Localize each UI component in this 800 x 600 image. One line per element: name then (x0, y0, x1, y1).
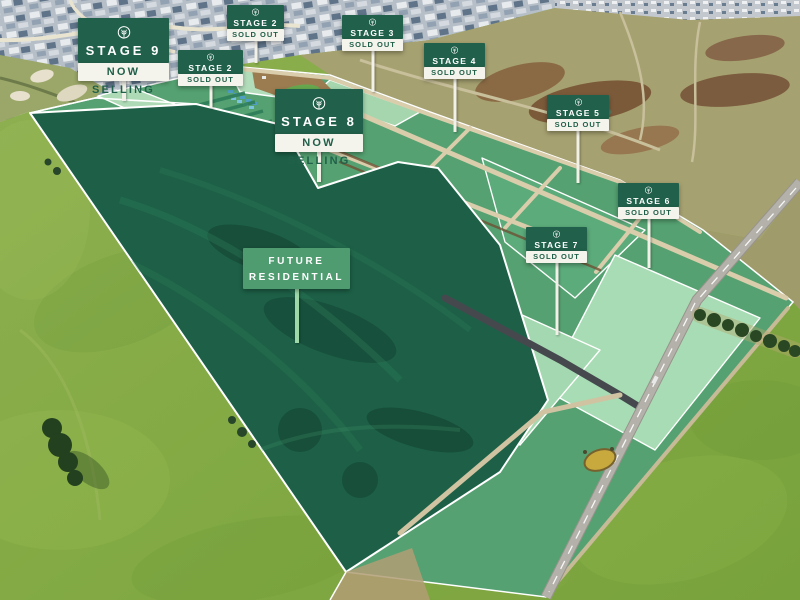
sign-stage-9: STAGE 9 NOW SELLING (78, 18, 169, 81)
sign-post (453, 77, 456, 132)
sign-board: STAGE 7 (526, 227, 587, 251)
sign-title: STAGE 4 (432, 56, 476, 66)
tree-icon (206, 53, 215, 62)
tree-icon (644, 186, 653, 195)
sign-status: SOLD OUT (424, 67, 485, 79)
sign-post (647, 217, 650, 268)
sign-title: STAGE 2 (233, 18, 277, 28)
sign-title: STAGE 7 (534, 240, 578, 250)
tree-icon (251, 8, 260, 17)
sign-status: NOW SELLING (275, 134, 363, 152)
sign-board: STAGE 4 (424, 43, 485, 67)
sign-stage-2-west: STAGE 2 SOLD OUT (178, 50, 243, 86)
sign-board: STAGE 5 (547, 95, 609, 119)
future-label-line1: FUTURE (268, 254, 324, 270)
sign-status: SOLD OUT (227, 29, 284, 41)
sign-title: STAGE 5 (556, 108, 600, 118)
sign-title: STAGE 2 (188, 63, 232, 73)
sign-board: STAGE 9 (78, 18, 169, 63)
sign-stage-2-north: STAGE 2 SOLD OUT (227, 5, 284, 41)
sign-post (555, 261, 558, 335)
tree-icon (368, 18, 377, 27)
sign-board: STAGE 8 (275, 89, 363, 134)
masterplan-aerial-image: STAGE 2 SOLD OUT STAGE 3 SOLD OUT STAGE … (0, 0, 800, 600)
sign-board: STAGE 6 (618, 183, 679, 207)
future-label-line2: RESIDENTIAL (249, 270, 344, 286)
sign-title: STAGE 9 (86, 43, 162, 58)
sign-stage-7: STAGE 7 SOLD OUT (526, 227, 587, 263)
sign-title: STAGE 3 (350, 28, 394, 38)
sign-stage-4: STAGE 4 SOLD OUT (424, 43, 485, 79)
tree-icon (574, 98, 583, 107)
sign-status: SOLD OUT (547, 119, 609, 131)
sign-status: SOLD OUT (342, 39, 403, 51)
tree-icon (552, 230, 561, 239)
sign-status: SOLD OUT (526, 251, 587, 263)
sign-board: STAGE 2 (227, 5, 284, 29)
sign-future-residential: FUTURE RESIDENTIAL (243, 248, 350, 289)
sign-post (209, 84, 212, 108)
sign-post (254, 39, 257, 63)
sign-board: STAGE 2 (178, 50, 243, 74)
tree-icon (311, 96, 327, 112)
sign-status: SOLD OUT (178, 74, 243, 86)
sign-board: FUTURE RESIDENTIAL (243, 248, 350, 289)
sign-post (371, 49, 374, 92)
sign-stage-8: STAGE 8 NOW SELLING (275, 89, 363, 152)
sign-status: NOW SELLING (78, 63, 169, 81)
tree-icon (116, 25, 132, 41)
sign-stage-5: STAGE 5 SOLD OUT (547, 95, 609, 131)
sign-title: STAGE 6 (626, 196, 670, 206)
sign-post (577, 129, 580, 183)
sign-post (295, 285, 299, 343)
sign-stage-3: STAGE 3 SOLD OUT (342, 15, 403, 51)
sign-board: STAGE 3 (342, 15, 403, 39)
sign-title: STAGE 8 (281, 114, 357, 129)
sign-status: SOLD OUT (618, 207, 679, 219)
sign-stage-6: STAGE 6 SOLD OUT (618, 183, 679, 219)
tree-icon (450, 46, 459, 55)
